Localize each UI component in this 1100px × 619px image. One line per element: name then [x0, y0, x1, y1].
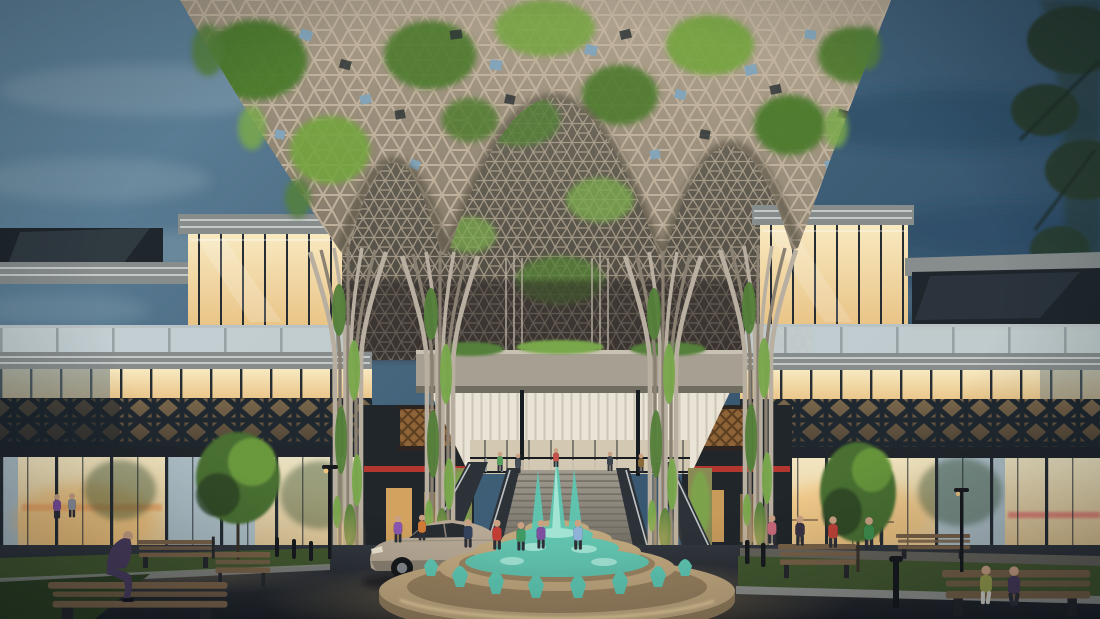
rendering-canvas	[0, 0, 1100, 619]
architectural-rendering	[0, 0, 1100, 619]
vignette-overlay	[0, 0, 1100, 619]
